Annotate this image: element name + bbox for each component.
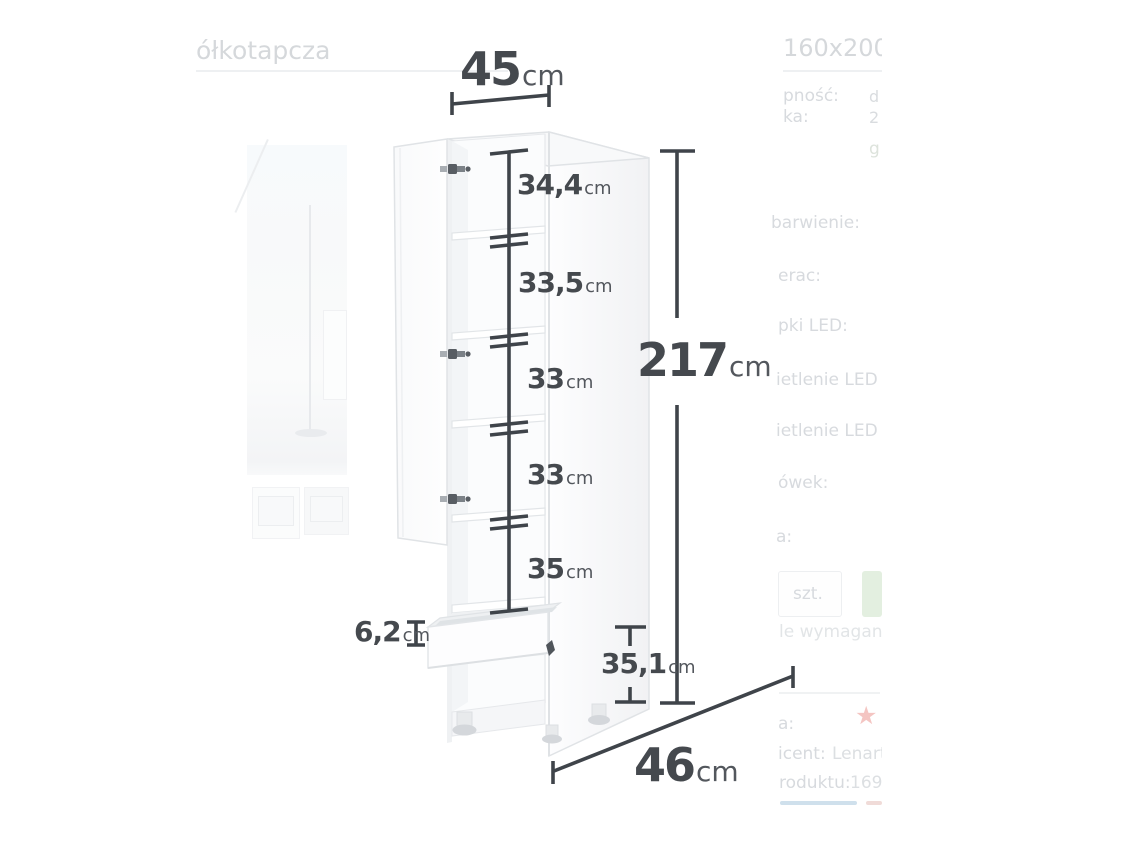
- dim-label-shelf: 33 cm: [527, 365, 593, 393]
- dim-label-width: 45 cm: [460, 46, 565, 92]
- cabinet-drawing: [0, 0, 1126, 844]
- dim-label-drawer: 6,2 cm: [354, 618, 430, 646]
- dim-label-shelf: 33,5 cm: [518, 269, 613, 297]
- dim-label-depth: 46 cm: [634, 742, 739, 788]
- dim-label-total-height: 217 cm: [637, 337, 772, 383]
- cabinet-door-open: [394, 139, 447, 545]
- lightbox-dimension-diagram: ółkotapcza 160x200 c pność: d ka: 2 g ba…: [0, 0, 1126, 844]
- dim-label-shelf: 34,4 cm: [517, 171, 612, 199]
- dim-label-bottom-section: 35,1 cm: [601, 650, 696, 678]
- dim-label-shelf: 33 cm: [527, 461, 593, 489]
- dim-line-total-height: [660, 151, 695, 703]
- dim-label-shelf: 35 cm: [527, 555, 593, 583]
